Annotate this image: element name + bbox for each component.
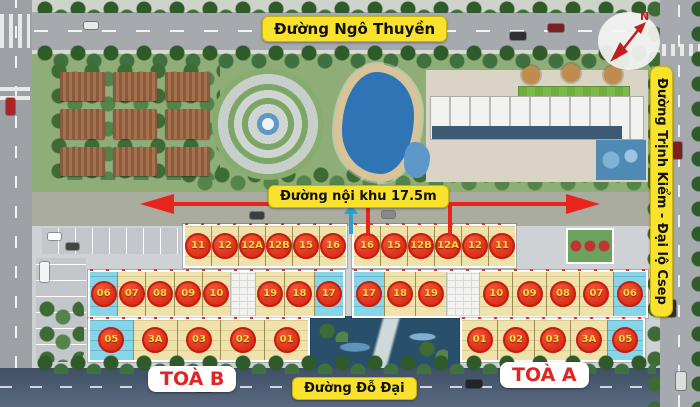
unit-number-badge: 02 [230,327,256,353]
unit-number-badge: 17 [316,281,342,307]
unit-number-badge: 19 [418,281,444,307]
unit-toa-a-07: 07 [580,272,613,316]
pergola-roof [165,147,210,176]
unit-number-badge: 01 [274,327,300,353]
unit-number-badge: 02 [503,327,529,353]
playground [596,140,646,180]
lane-markings [678,0,680,407]
compass-north-label: N [640,10,649,23]
toa-a-mid-left-units: 171819 [354,272,446,316]
unit-toa-a-08: 08 [547,272,580,316]
inner-road-label: Đường nội khu 17.5m [268,185,449,208]
garden [38,300,84,362]
unit-number-badge: 10 [483,281,509,307]
right-road-label: Đường Trịnh Kiểm - Đại lộ Csep [650,66,673,317]
unit-number-badge: 08 [550,281,576,307]
tree-row [690,0,700,407]
top-road-label: Đường Ngô Thuyền [262,16,447,42]
unit-number-badge: 06 [91,281,117,307]
toa-a-mid-wing: 171819 1009080706 [352,270,648,318]
unit-toa-b-17: 17 [315,272,343,316]
car [548,24,564,32]
car [510,32,526,40]
unit-toa-b-19: 19 [256,272,285,316]
toa-b-mid-right-units: 191817 [256,272,343,316]
unit-toa-b-09: 09 [175,272,203,316]
unit-toa-b-08: 08 [146,272,174,316]
toa-b-mid-wing: 0607080910 191817 [88,270,345,318]
unit-number-badge: 01 [467,327,493,353]
unit-number-badge: 10 [203,281,229,307]
tree-icon [522,66,540,84]
unit-number-badge: 09 [517,281,543,307]
unit-number-badge: 08 [147,281,173,307]
pergola-roof [60,147,105,176]
unit-toa-b-18: 18 [285,272,314,316]
tree-row [36,0,646,13]
unit-toa-a-18: 18 [385,272,416,316]
unit-number-badge: 18 [286,281,312,307]
car [466,380,482,388]
splash-pad [404,142,430,178]
unit-number-badge: 3A [576,327,602,353]
car [676,372,686,390]
toa-a-label: TOÀ A [500,362,589,388]
pergola-roof [165,109,210,138]
pergola-roof [113,72,158,101]
clubhouse [426,70,648,182]
glass-canopy [432,126,622,139]
car [6,98,15,115]
lane-markings [15,0,17,368]
unit-number-badge: 3A [142,327,168,353]
site-plan-map: 111212A12B1516 0607080910 191817 053A030… [0,0,700,407]
unit-number-badge: 03 [540,327,566,353]
car [673,142,682,159]
unit-toa-a-19: 19 [416,272,446,316]
toa-a-mid-right-units: 1009080706 [480,272,646,316]
crosswalk [0,86,30,100]
van [40,262,49,282]
tree-icon [562,64,580,82]
unit-toa-b-07: 07 [118,272,146,316]
fountain-plaza [212,68,324,180]
unit-toa-a-09: 09 [513,272,546,316]
compass-icon: N [596,8,662,74]
unit-toa-a-06: 06 [614,272,646,316]
unit-number-badge: 09 [175,281,201,307]
unit-number-badge: 19 [257,281,283,307]
pergola-roof [165,72,210,101]
unit-number-badge: 03 [186,327,212,353]
car [66,243,79,250]
unit-number-badge: 07 [583,281,609,307]
unit-toa-a-17: 17 [354,272,385,316]
pergola-roof [60,109,105,138]
toa-b-mid-left-units: 0607080910 [90,272,230,316]
unit-number-badge: 17 [356,281,382,307]
park-pergolas [56,68,214,180]
unit-number-badge: 06 [617,281,643,307]
entrance-arrow-icon [343,204,359,234]
crosswalk [0,14,30,48]
unit-toa-b-10: 10 [203,272,230,316]
unit-toa-a-10: 10 [480,272,513,316]
toa-a-core [446,272,480,316]
left-road [0,0,32,368]
car [48,233,61,240]
unit-number-badge: 05 [612,327,638,353]
toa-b-core [230,272,256,316]
bottom-road-label: Đường Đỗ Đại [292,377,417,400]
pergola-roof [60,72,105,101]
unit-number-badge: 18 [387,281,413,307]
toa-b-label: TOÀ B [148,366,236,392]
tree-icon [318,322,348,342]
unit-toa-b-06: 06 [90,272,118,316]
pergola-roof [113,109,158,138]
pergola-roof [113,147,158,176]
car [84,22,98,29]
unit-number-badge: 05 [98,327,124,353]
unit-number-badge: 07 [119,281,145,307]
